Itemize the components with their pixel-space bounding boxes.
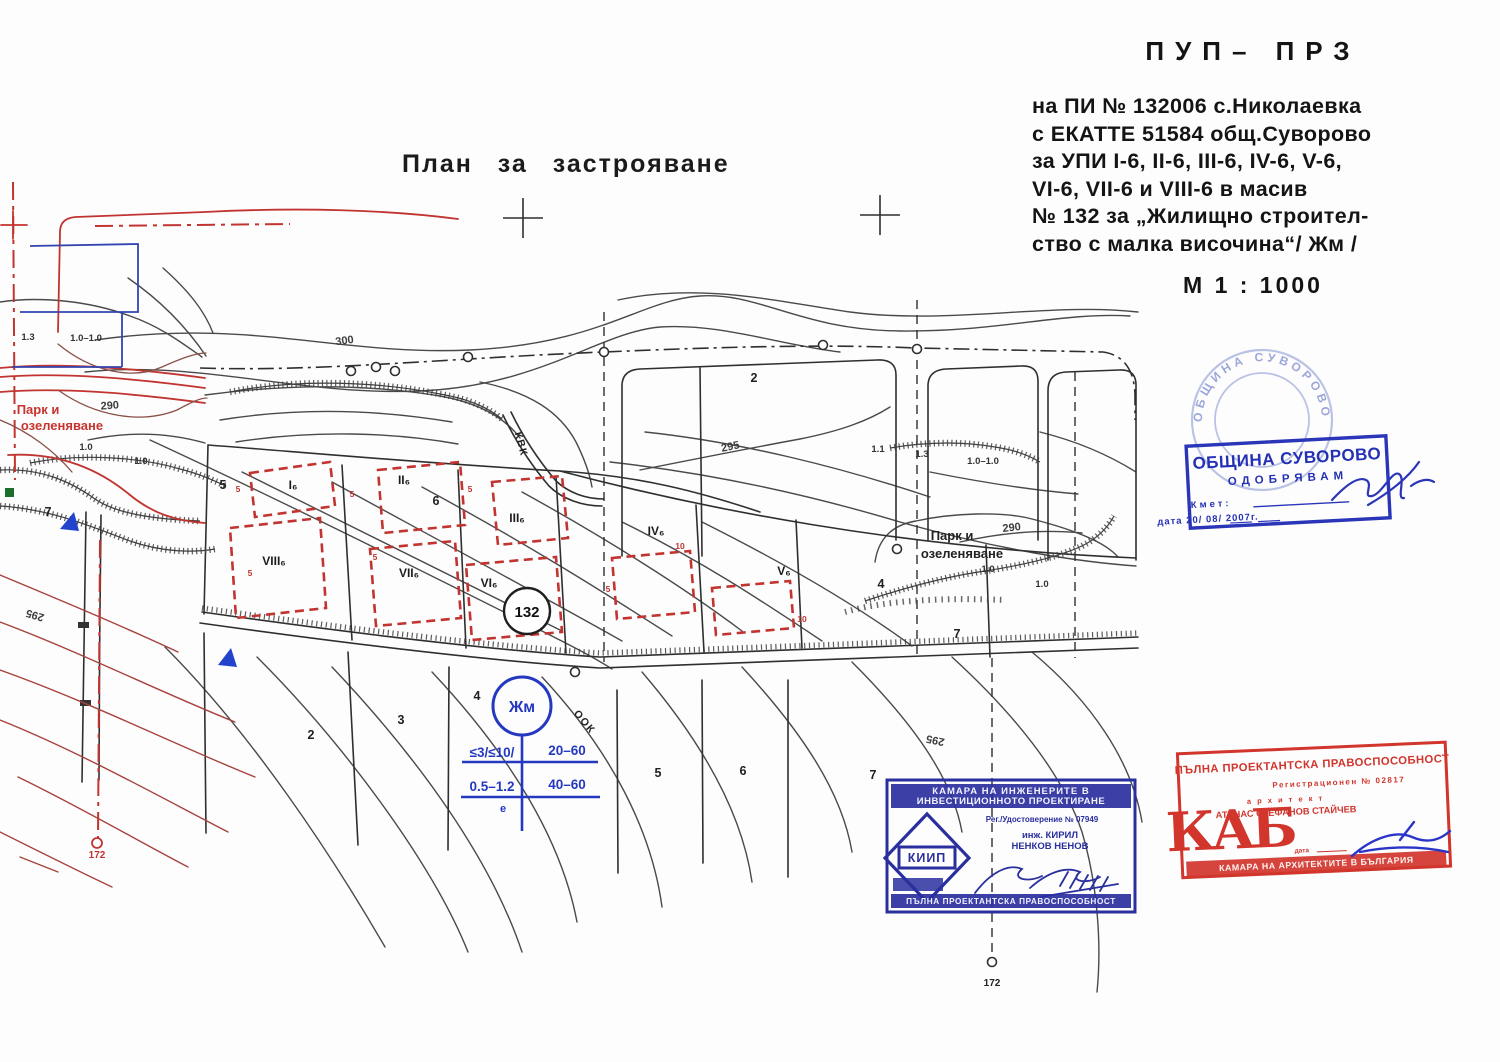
- plan-sheet: План за застрояване ПУП– ПРЗ на ПИ № 132…: [0, 0, 1500, 1062]
- map-label: 3: [398, 713, 405, 727]
- map-label: 5: [236, 484, 241, 494]
- map-label: 5: [350, 489, 355, 499]
- map-label: VIII₆: [262, 554, 285, 568]
- map-label: ООК: [571, 708, 598, 737]
- map-label: 1.3: [21, 332, 34, 343]
- zone-code: Жм: [508, 699, 535, 716]
- architect-signature: [1352, 822, 1450, 856]
- regulation-lines: [0, 182, 458, 887]
- map-label: озеленяване: [21, 418, 103, 433]
- map-label: 4: [878, 577, 885, 591]
- map-label: 1.0: [1035, 579, 1048, 590]
- kab-reg-number: Регистрационен № 02817: [1272, 775, 1405, 790]
- map-label: 290: [1002, 521, 1022, 535]
- map-label: VI₆: [481, 576, 498, 590]
- site-plan-map: 132 Жм ≤3/≤10/ 20–60 0.5–1.2 40–60 е 300…: [0, 0, 1500, 1062]
- legend-note: е: [500, 803, 506, 815]
- kab-stamp: ПЪЛНА ПРОЕКТАНТСКА ПРАВОСПОСОБНОСТ Регис…: [1163, 742, 1454, 878]
- map-label: Парк и: [17, 402, 60, 417]
- map-label: 2: [751, 371, 758, 385]
- grid-cross: [503, 195, 900, 238]
- massif-number: 132: [514, 604, 539, 621]
- kiip-bottom-line: ПЪЛНА ПРОЕКТАНТСКА ПРАВОСПОСОБНОСТ: [906, 897, 1116, 906]
- seal-circular-text: ОБЩИНА СУВОРОВО: [1191, 350, 1334, 422]
- municipality-stamp: ОБЩИНА СУВОРОВО ОДОБРЯВАМ Кмет: дата 20/…: [1153, 436, 1390, 530]
- map-label: 5: [606, 584, 611, 594]
- map-label: V₆: [777, 564, 790, 578]
- map-label: 5: [468, 484, 473, 494]
- kab-date-label: дата: [1294, 847, 1309, 855]
- map-label: 1.0–1.0: [70, 333, 102, 344]
- kiip-small-box: [893, 878, 943, 891]
- stamp-mayor-label: Кмет:: [1191, 498, 1232, 511]
- map-label: 295: [925, 732, 945, 748]
- map-label: 4: [474, 689, 481, 703]
- map-label: 1.0: [981, 564, 994, 575]
- legend-greenery: 40–60: [548, 777, 586, 792]
- legend-floors-height: ≤3/≤10/: [470, 745, 515, 760]
- map-label: 10: [797, 614, 807, 624]
- contour-lines: [0, 268, 1142, 992]
- map-label: Парк и: [931, 528, 974, 543]
- kiip-stamp: КАМАРА НА ИНЖЕНЕРИТЕ В ИНВЕСТИЦИОННОТО П…: [885, 780, 1135, 912]
- legend-density: 20–60: [548, 743, 586, 758]
- map-label: 172: [984, 978, 1001, 989]
- stamp-municipality-title: ОБЩИНА СУВОРОВО: [1192, 444, 1382, 473]
- map-label: III₆: [509, 511, 524, 525]
- kiip-engineer-line1: инж. КИРИЛ: [1022, 830, 1078, 841]
- map-label: VII₆: [399, 566, 419, 580]
- map-label: 295: [25, 606, 46, 623]
- map-label: II₆: [398, 473, 410, 487]
- zoning-legend: Жм ≤3/≤10/ 20–60 0.5–1.2 40–60 е: [461, 677, 600, 831]
- map-label: 6: [433, 494, 440, 508]
- engineer-signature: [975, 867, 1118, 897]
- map-label: 1.0: [134, 456, 147, 467]
- map-label: 1.0: [79, 442, 92, 453]
- map-label: 290: [100, 399, 119, 412]
- kab-logo: КАБ: [1165, 795, 1297, 865]
- kiip-logo: КИИП: [908, 851, 947, 865]
- kiip-reg-number: Рег./Удостоверение № 07949: [986, 815, 1099, 824]
- map-label: озеленяване: [921, 546, 1003, 561]
- map-label: 10: [675, 541, 685, 551]
- legend-intensity: 0.5–1.2: [469, 779, 514, 794]
- map-label: 295: [720, 439, 740, 455]
- map-label: 6: [740, 764, 747, 778]
- map-label: 1.1: [871, 444, 885, 455]
- map-label: IV₆: [648, 524, 665, 538]
- map-label: 5: [248, 568, 253, 578]
- map-label: 172: [89, 850, 106, 861]
- svg-text:ОБЩИНА СУВОРОВО: ОБЩИНА СУВОРОВО: [1191, 350, 1334, 422]
- map-label: I₆: [289, 478, 298, 492]
- map-label: 1.3: [915, 449, 928, 460]
- map-label: 7: [954, 627, 961, 641]
- map-label: 7: [870, 768, 877, 782]
- map-label: 2: [308, 728, 315, 742]
- kiip-org-line2: ИНВЕСТИЦИОННОТО ПРОЕКТИРАНЕ: [917, 796, 1106, 807]
- map-label: КВК: [512, 431, 530, 458]
- massif-marker: 132: [504, 588, 550, 634]
- mayor-signature: [1332, 462, 1434, 505]
- map-label: 5: [655, 766, 662, 780]
- map-label: 5: [373, 552, 378, 562]
- map-label: 5: [220, 478, 227, 492]
- kab-top-line: ПЪЛНА ПРОЕКТАНТСКА ПРАВОСПОСОБНОСТ: [1175, 753, 1450, 777]
- map-label: 300: [335, 334, 355, 348]
- kiip-engineer-line2: НЕНКОВ НЕНОВ: [1011, 841, 1088, 852]
- map-label: 1.0–1.0: [967, 456, 999, 467]
- map-label: 7: [45, 505, 52, 519]
